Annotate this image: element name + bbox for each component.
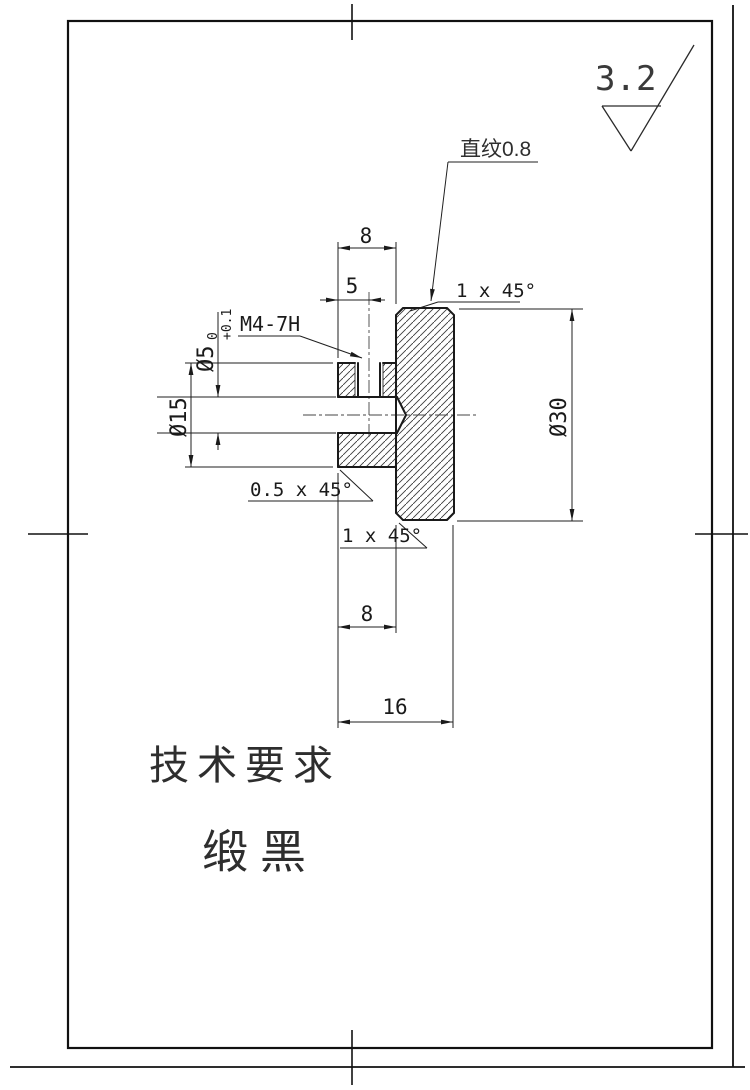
bore-dia-label: Ø5 bbox=[194, 346, 219, 373]
tech-requirements-heading: 技术要求 bbox=[149, 744, 341, 788]
roughness-value: 3.2 bbox=[595, 59, 656, 99]
dim-hub-width: 8 bbox=[361, 602, 374, 626]
head-dia-label: Ø30 bbox=[547, 397, 572, 437]
dim-thread-offset: 5 bbox=[346, 274, 359, 298]
drawing-sheet: 3.2 bbox=[0, 0, 750, 1090]
finish-note: 缎黑 bbox=[202, 826, 318, 878]
dim-total-width: 16 bbox=[382, 695, 407, 719]
thread-label: M4-7H bbox=[240, 312, 300, 336]
chamfer-hub-label: 0.5 x 45° bbox=[250, 479, 353, 501]
chamfer-top-label: 1 x 45° bbox=[456, 280, 536, 302]
chamfer-bottom-label: 1 x 45° bbox=[342, 525, 422, 547]
bore-tol-lower: 0 bbox=[206, 332, 221, 340]
hub-dia-label: Ø15 bbox=[167, 397, 192, 437]
knurl-note: 直纹0.8 bbox=[460, 138, 531, 161]
drawing-canvas: 3.2 bbox=[0, 0, 750, 1090]
dim-head-top-width: 8 bbox=[360, 224, 373, 248]
bore-tol-upper: +0.1 bbox=[220, 309, 235, 340]
